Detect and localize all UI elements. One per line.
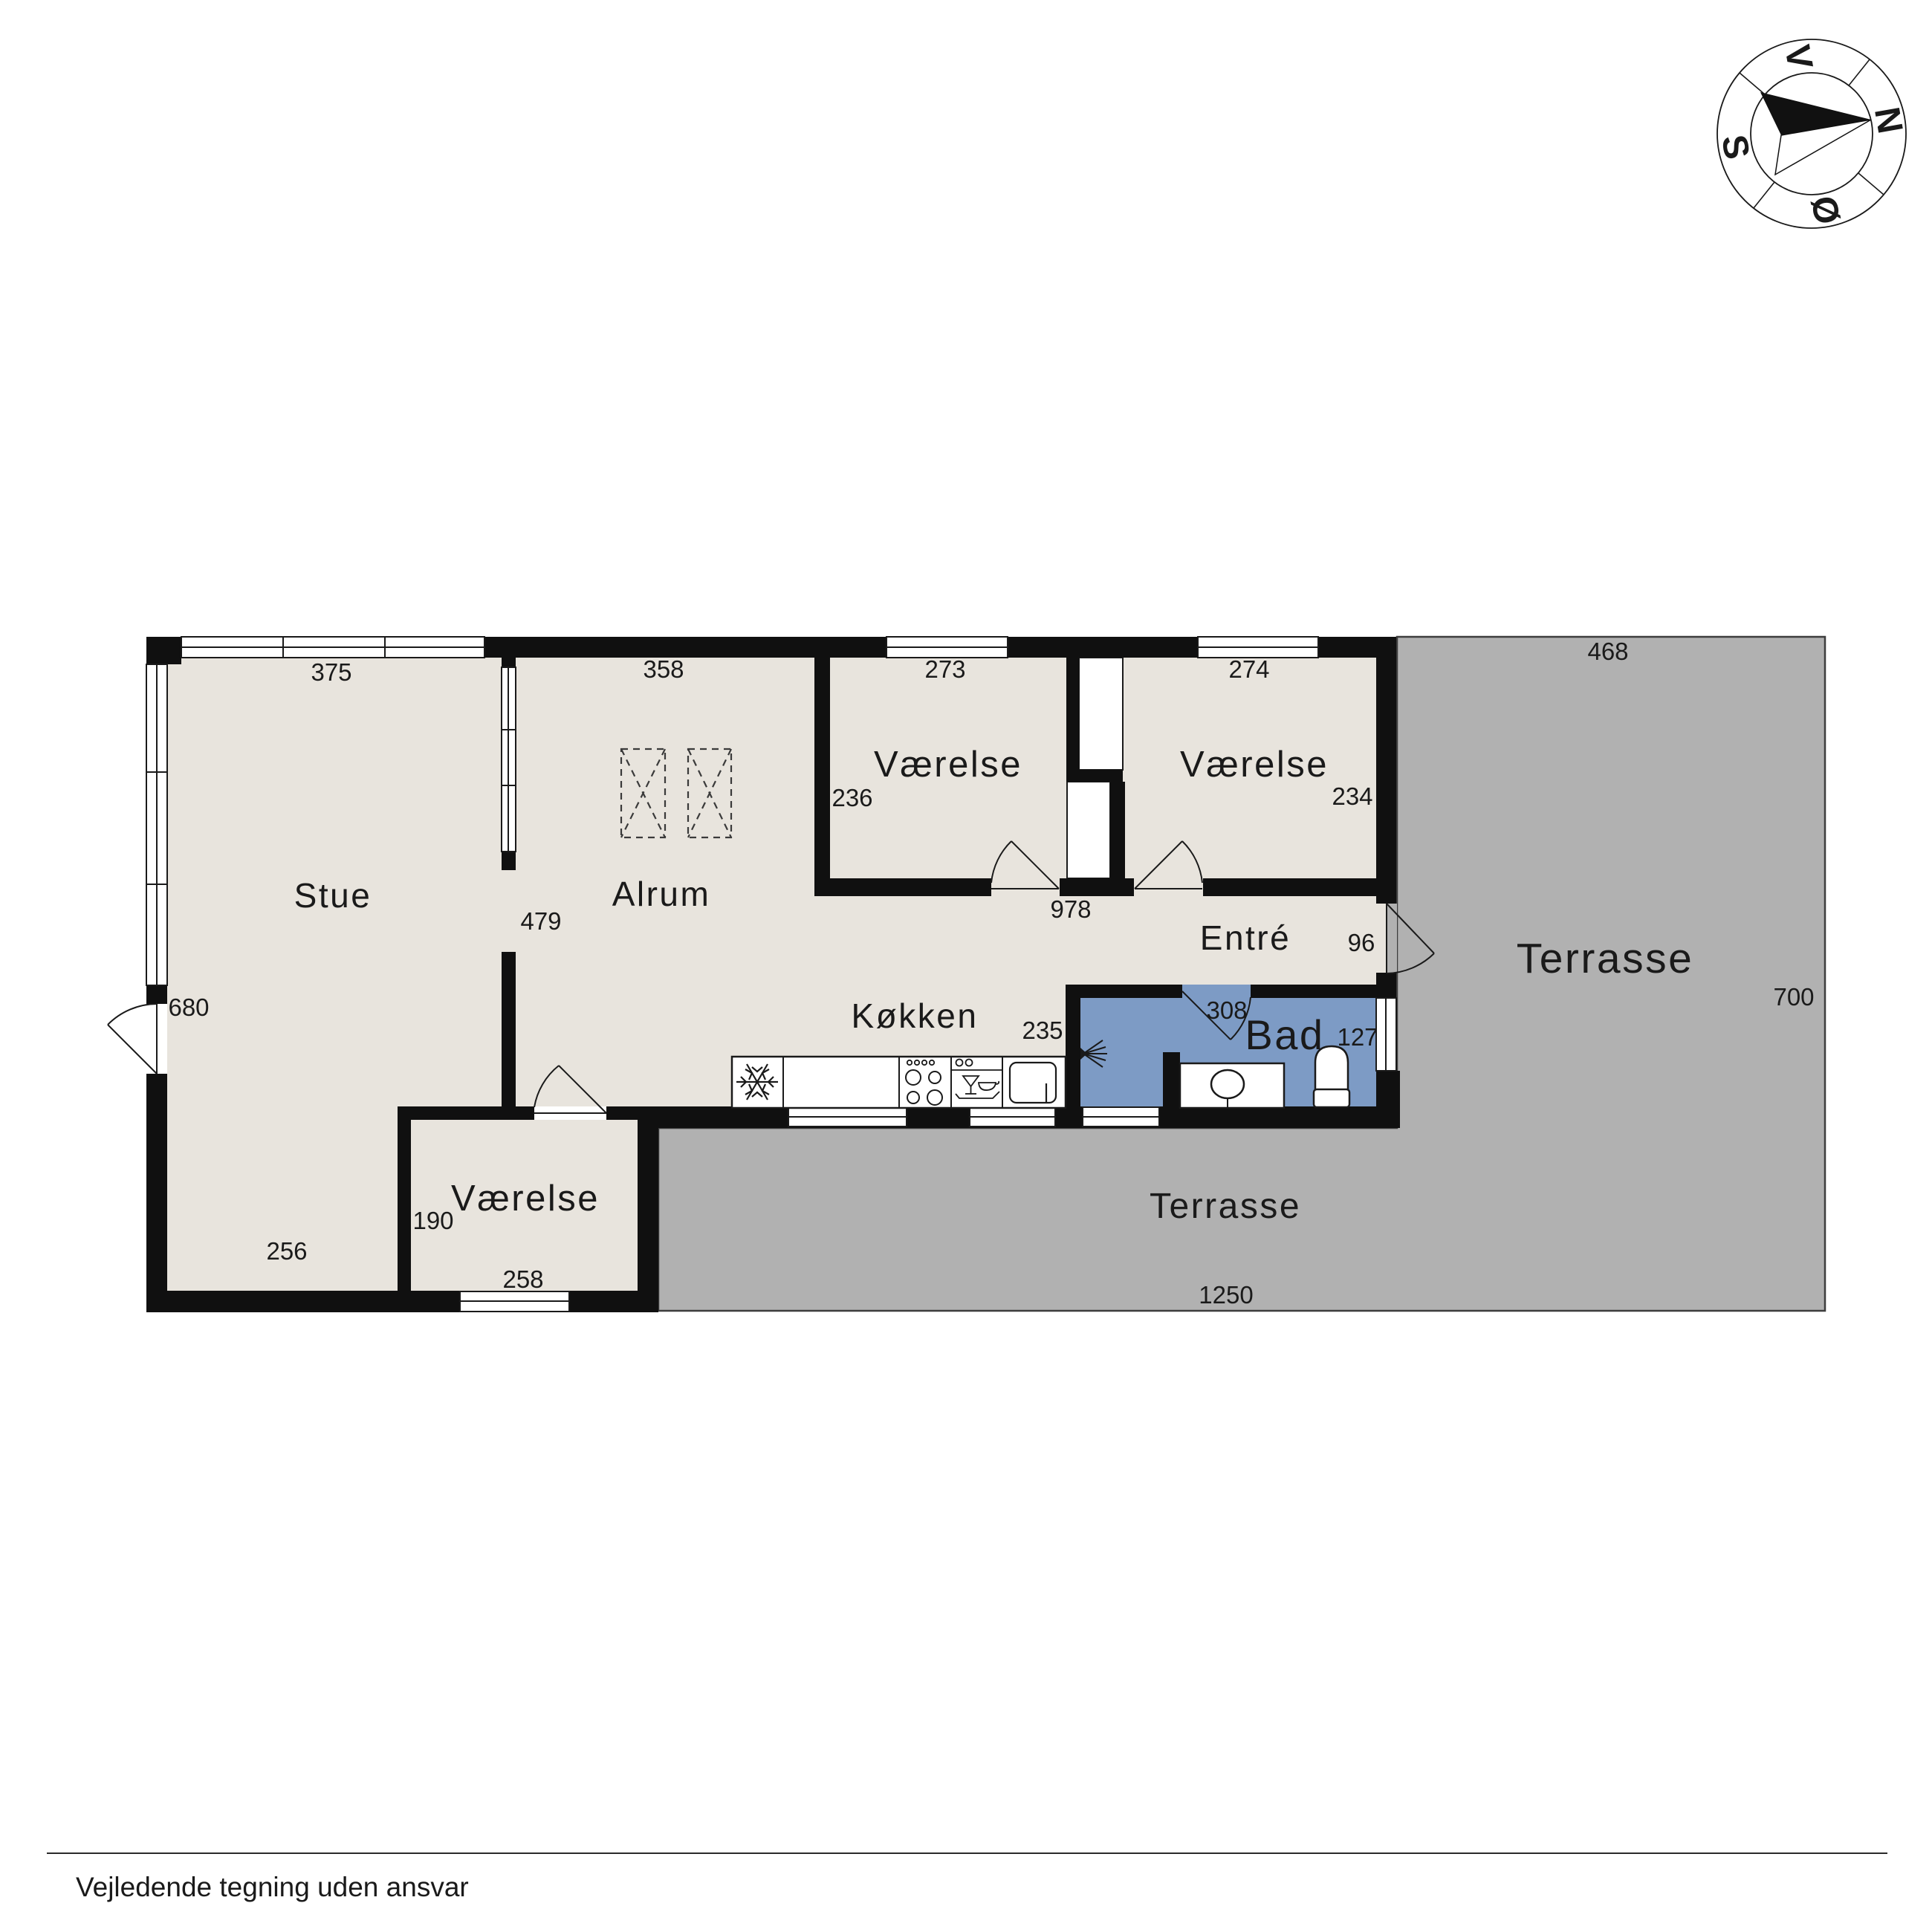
svg-text:680: 680 [168,993,209,1021]
svg-text:273: 273 [924,655,965,683]
svg-text:258: 258 [502,1265,543,1293]
svg-text:978: 978 [1050,895,1091,923]
svg-text:Køkken: Køkken [852,996,979,1035]
svg-text:Terrasse: Terrasse [1517,935,1694,982]
svg-text:256: 256 [266,1237,307,1265]
svg-text:127: 127 [1337,1023,1378,1051]
svg-text:Stue: Stue [294,876,372,915]
svg-text:234: 234 [1332,782,1372,810]
svg-text:Terrasse: Terrasse [1150,1187,1301,1226]
svg-text:Vejledende tegning uden ansvar: Vejledende tegning uden ansvar [76,1872,469,1902]
svg-text:358: 358 [643,655,684,683]
svg-text:Værelse: Værelse [1180,745,1329,785]
svg-text:Bad: Bad [1245,1011,1324,1058]
svg-text:468: 468 [1587,638,1628,665]
svg-text:274: 274 [1228,655,1269,683]
svg-text:479: 479 [520,907,561,935]
svg-text:1250: 1250 [1199,1281,1253,1309]
svg-text:Alrum: Alrum [612,875,711,913]
svg-text:Entré: Entré [1200,918,1291,957]
svg-text:236: 236 [832,784,872,811]
svg-text:375: 375 [311,658,351,686]
svg-text:Værelse: Værelse [874,745,1022,785]
svg-text:Værelse: Værelse [451,1179,600,1219]
svg-text:308: 308 [1206,996,1247,1024]
svg-text:235: 235 [1022,1017,1063,1044]
svg-text:96: 96 [1348,929,1375,956]
svg-text:190: 190 [412,1207,453,1234]
svg-text:700: 700 [1773,983,1814,1011]
